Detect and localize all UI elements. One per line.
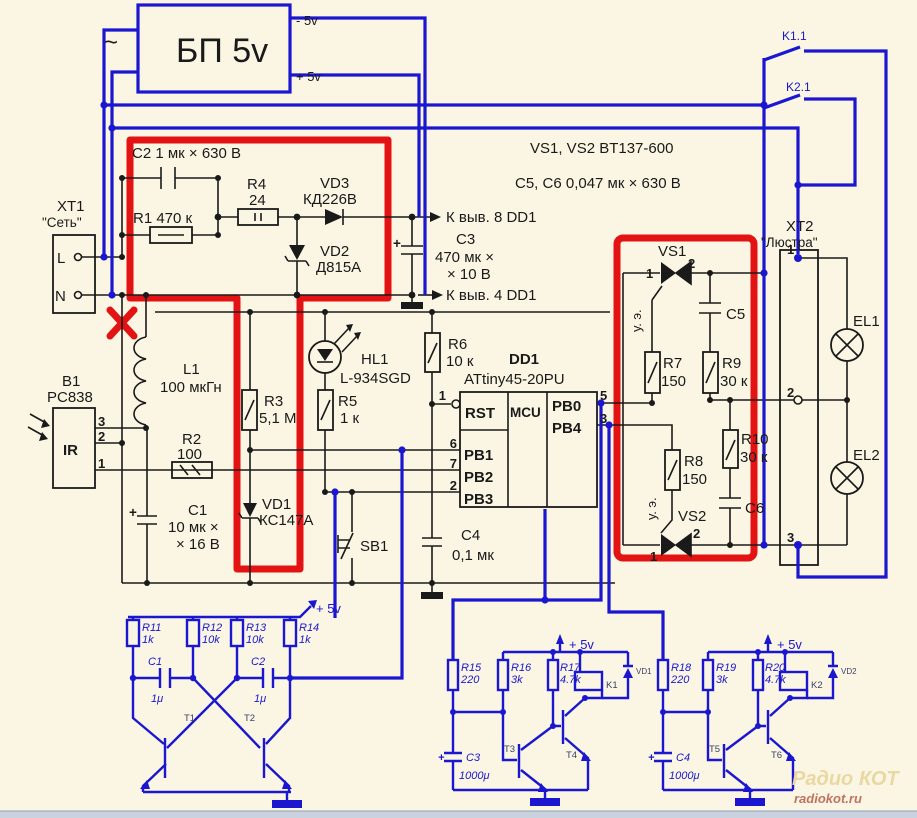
dd1-pb1: PB1 (464, 447, 493, 464)
label-l1: L1 (183, 361, 200, 378)
dd1-pin5: 5 (600, 388, 607, 403)
label-r9: R9 (722, 355, 741, 372)
label-r19: R19 (716, 662, 736, 674)
label-mv-c1: C1 (148, 656, 162, 668)
label-drv-c4: C4 (676, 752, 690, 764)
drv2-plus-5v: + 5v (777, 637, 802, 652)
label-to-pin4: К выв. 4 DD1 (446, 287, 536, 304)
xt1-title: "Сеть" (42, 215, 82, 230)
drv1-plus-5v: + 5v (569, 637, 594, 652)
label-r19-value: 3k (716, 674, 728, 686)
label-t1: T1 (184, 713, 195, 724)
b1-pin3: 3 (98, 414, 105, 429)
label-r4-value: 24 (249, 192, 266, 209)
label-r16-value: 3k (511, 674, 523, 686)
label-sb1: SB1 (360, 538, 388, 555)
label-r3: R3 (264, 393, 283, 410)
label-vd2: VD2 (320, 243, 349, 260)
schematic-screenshot: БП 5v ~ - 5v + 5v K1.1 K2.1 VS1, VS2 BT1… (0, 0, 917, 818)
label-r8-value: 150 (682, 471, 707, 488)
label-r5: R5 (338, 393, 357, 410)
label-r3-value: 5,1 М (259, 410, 297, 427)
contact-k21-label: K2.1 (786, 80, 811, 94)
label-r16: R16 (511, 662, 532, 674)
dd1-pb4: PB4 (552, 420, 582, 437)
label-el2: EL2 (853, 447, 880, 464)
label-c2: C2 1 мк × 630 В (132, 145, 241, 162)
xt2-t1: 1 (787, 242, 794, 257)
label-vd1-type: КС147А (259, 512, 313, 529)
dd1-pin1: 1 (439, 388, 446, 403)
label-t6: T6 (771, 750, 782, 761)
xt1-n: N (55, 288, 66, 305)
label-c3-value2: × 10 В (447, 266, 491, 283)
xt1-label: XT1 (57, 198, 85, 215)
label-t2: T2 (244, 713, 255, 724)
watermark-title: Радио КОТ (792, 768, 900, 790)
label-dd1: DD1 (509, 351, 539, 368)
label-c4: C4 (461, 527, 480, 544)
xt2-t3: 3 (787, 530, 794, 545)
label-vd3-type: КД226В (303, 191, 357, 208)
label-c1-value1: 10 мк × (168, 519, 219, 536)
label-r17: R17 (560, 662, 581, 674)
label-vd2-type: Д815А (316, 259, 361, 276)
dd1-pin2: 2 (450, 478, 457, 493)
label-r4: R4 (247, 176, 266, 193)
label-r2-value: 100 (177, 446, 202, 463)
psu-label: БП 5v (176, 32, 268, 70)
label-el1: EL1 (853, 313, 880, 330)
label-r12: R12 (202, 622, 222, 634)
label-drv-vd2: VD2 (841, 667, 857, 676)
dd1-pin7: 7 (450, 456, 457, 471)
label-r15-value: 220 (460, 674, 480, 686)
note-caps: C5, C6 0,047 мк × 630 В (515, 175, 681, 192)
dd1-pin3: 3 (600, 411, 607, 426)
label-drv-vd1: VD1 (636, 667, 652, 676)
note-triacs: VS1, VS2 BT137-600 (530, 140, 673, 157)
dd1-pb0: PB0 (552, 398, 581, 415)
label-mv-c2-value: 1μ (254, 693, 266, 705)
label-r9-value: 30 к (720, 373, 748, 390)
label-mv-c1-value: 1μ (151, 693, 163, 705)
label-c5: C5 (726, 306, 745, 323)
label-c3-value1: 470 мк × (435, 249, 494, 266)
label-drv-c4-value: 1000μ (669, 770, 700, 782)
label-r8: R8 (684, 453, 703, 470)
label-r17-value: 4.7k (560, 674, 581, 686)
label-t5: T5 (709, 744, 720, 755)
vs1-pin2: 2 (688, 256, 695, 271)
label-drv-c3: C3 (466, 752, 481, 764)
vs2-pin2: 2 (693, 526, 700, 541)
contact-k11-label: K1.1 (782, 29, 807, 43)
label-c3: C3 (456, 231, 475, 248)
label-r5-value: 1 к (340, 410, 360, 427)
label-dd1-part: ATtiny45-20PU (464, 371, 565, 388)
label-r1: R1 470 к (133, 210, 193, 227)
b1-pin2: 2 (98, 429, 105, 444)
label-r18: R18 (671, 662, 692, 674)
label-r6: R6 (448, 336, 467, 353)
label-r14-value: 1k (299, 634, 311, 646)
label-vd3: VD3 (320, 175, 349, 192)
c3-plus: + (393, 236, 401, 251)
label-r18-value: 220 (670, 674, 690, 686)
label-k2: K2 (811, 680, 823, 691)
label-c1: C1 (188, 502, 207, 519)
vs2-gate-label: у. э. (644, 497, 659, 520)
window-bottom-strip (0, 811, 917, 818)
label-r6-value: 10 к (446, 353, 474, 370)
label-r10-value: 30 к (740, 449, 768, 466)
drv-c4-plus: + (648, 752, 655, 764)
dd1-pb2: PB2 (464, 469, 493, 486)
label-r20: R20 (765, 662, 786, 674)
xt2-t2: 2 (787, 385, 794, 400)
label-c6: C6 (745, 500, 764, 517)
vs2-pin1: 1 (650, 549, 657, 564)
dd1-pb3: PB3 (464, 491, 493, 508)
c1-plus: + (129, 505, 137, 520)
label-to-pin8: К выв. 8 DD1 (446, 209, 536, 226)
ac-symbol: ~ (104, 29, 118, 56)
label-r12-value: 10k (202, 634, 220, 646)
label-r10: R10 (741, 431, 769, 448)
label-l1-value: 100 мкГн (160, 379, 222, 396)
label-mv-c2: C2 (251, 656, 265, 668)
psu-plus-5v: + 5v (296, 69, 321, 84)
label-b1: B1 (62, 373, 80, 390)
b1-pin1: 1 (98, 456, 105, 471)
label-vs1: VS1 (658, 243, 686, 260)
label-r7: R7 (663, 355, 682, 372)
dd1-pin6: 6 (450, 436, 457, 451)
dd1-rst: RST (465, 405, 495, 422)
label-r11: R11 (142, 622, 161, 634)
label-t4: T4 (566, 750, 577, 761)
vs1-gate-label: у. э. (629, 309, 644, 332)
label-hl1-type: L-934SGD (340, 370, 411, 387)
label-vd1: VD1 (262, 496, 291, 513)
label-vs2: VS2 (678, 508, 706, 525)
label-c1-value2: × 16 В (176, 536, 220, 553)
label-r13-value: 10k (246, 634, 264, 646)
label-r20-value: 4.7k (765, 674, 786, 686)
label-c4-value: 0,1 мк (452, 547, 494, 564)
label-r7-value: 150 (661, 373, 686, 390)
psu-minus-5v: - 5v (296, 13, 318, 28)
circuit-schematic: БП 5v ~ - 5v + 5v K1.1 K2.1 VS1, VS2 BT1… (0, 0, 917, 818)
drv-c3-plus: + (438, 752, 445, 764)
label-b1-type: PC838 (47, 389, 93, 406)
label-hl1: HL1 (361, 351, 389, 368)
label-r13: R13 (246, 622, 267, 634)
mv-plus-5v: + 5v (316, 601, 341, 616)
label-r15: R15 (461, 662, 482, 674)
label-ir: IR (63, 442, 78, 459)
xt2-label: XT2 (786, 218, 814, 235)
vs1-pin1: 1 (646, 266, 653, 281)
watermark-url: radiokot.ru (794, 791, 862, 806)
label-k1: K1 (606, 680, 618, 691)
xt1-l: L (57, 250, 65, 267)
label-r11-value: 1k (142, 634, 154, 646)
dd1-mcu: MCU (510, 405, 541, 420)
label-t3: T3 (504, 744, 515, 755)
label-r14: R14 (299, 622, 319, 634)
label-drv-c3-value: 1000μ (459, 770, 490, 782)
